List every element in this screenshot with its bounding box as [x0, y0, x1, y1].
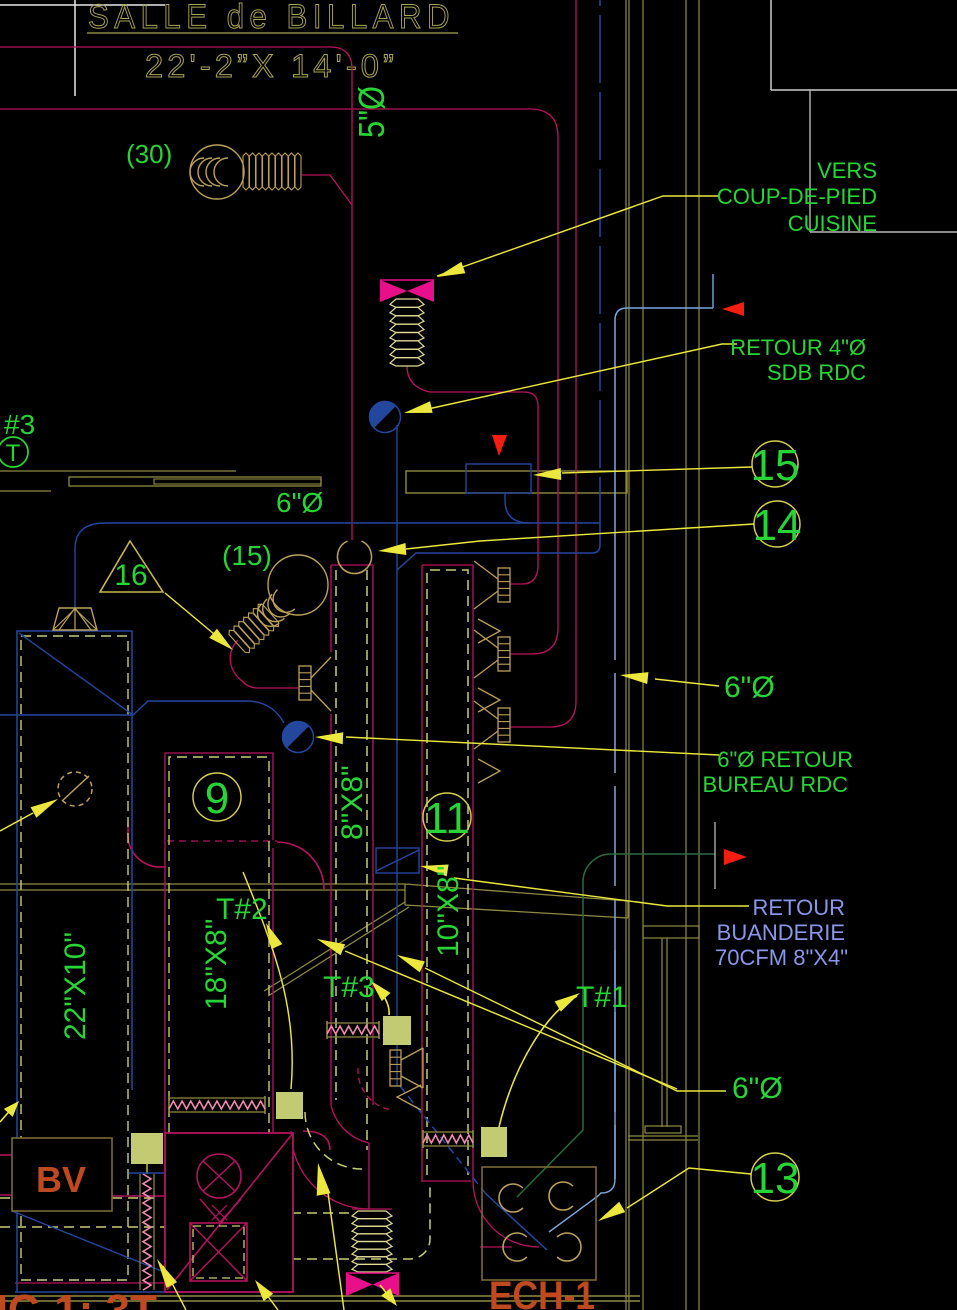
svg-text:#3: #3: [4, 409, 35, 440]
svg-text:6"Ø: 6"Ø: [276, 487, 323, 518]
svg-text:SDB RDC: SDB RDC: [767, 360, 866, 385]
svg-text:6"Ø: 6"Ø: [724, 671, 775, 704]
svg-text:14: 14: [753, 501, 802, 550]
svg-text:6"Ø RETOUR: 6"Ø RETOUR: [717, 747, 853, 772]
svg-text:CUISINE: CUISINE: [788, 211, 877, 236]
svg-text:VERS: VERS: [817, 158, 877, 183]
svg-text:UC-1: 3T: UC-1: 3T: [0, 1286, 157, 1310]
svg-text:T#3: T#3: [323, 971, 375, 1004]
svg-text:(15): (15): [222, 540, 272, 571]
svg-text:ECH-1: ECH-1: [489, 1274, 595, 1310]
svg-text:5"Ø: 5"Ø: [351, 86, 392, 138]
svg-text:BUANDERIE: BUANDERIE: [717, 920, 845, 945]
svg-text:70CFM 8"X4": 70CFM 8"X4": [715, 945, 848, 970]
svg-text:10"X8": 10"X8": [432, 866, 465, 957]
svg-text:18"X8": 18"X8": [200, 919, 233, 1010]
svg-text:BUREAU RDC: BUREAU RDC: [703, 772, 849, 797]
svg-text:SALLE de BILLARD: SALLE de BILLARD: [88, 0, 455, 36]
svg-text:COUP-DE-PIED: COUP-DE-PIED: [717, 184, 877, 209]
svg-text:T#1: T#1: [576, 981, 628, 1014]
svg-text:11: 11: [424, 794, 470, 843]
svg-text:22"X10": 22"X10": [59, 932, 92, 1040]
svg-text:16: 16: [114, 559, 147, 592]
svg-text:RETOUR 4"Ø: RETOUR 4"Ø: [730, 335, 866, 360]
svg-text:RETOUR: RETOUR: [753, 895, 846, 920]
svg-text:6"Ø: 6"Ø: [732, 1072, 783, 1105]
svg-text:9: 9: [205, 774, 229, 823]
svg-text:22'-2”X 14'-0”: 22'-2”X 14'-0”: [145, 48, 398, 84]
svg-text:(30): (30): [126, 139, 172, 169]
svg-text:13: 13: [751, 1154, 800, 1203]
svg-text:T: T: [6, 440, 21, 467]
svg-text:8"X8": 8"X8": [336, 765, 369, 840]
svg-text:BV: BV: [36, 1159, 86, 1200]
svg-text:+: +: [0, 551, 1, 581]
svg-text:15: 15: [751, 441, 800, 490]
